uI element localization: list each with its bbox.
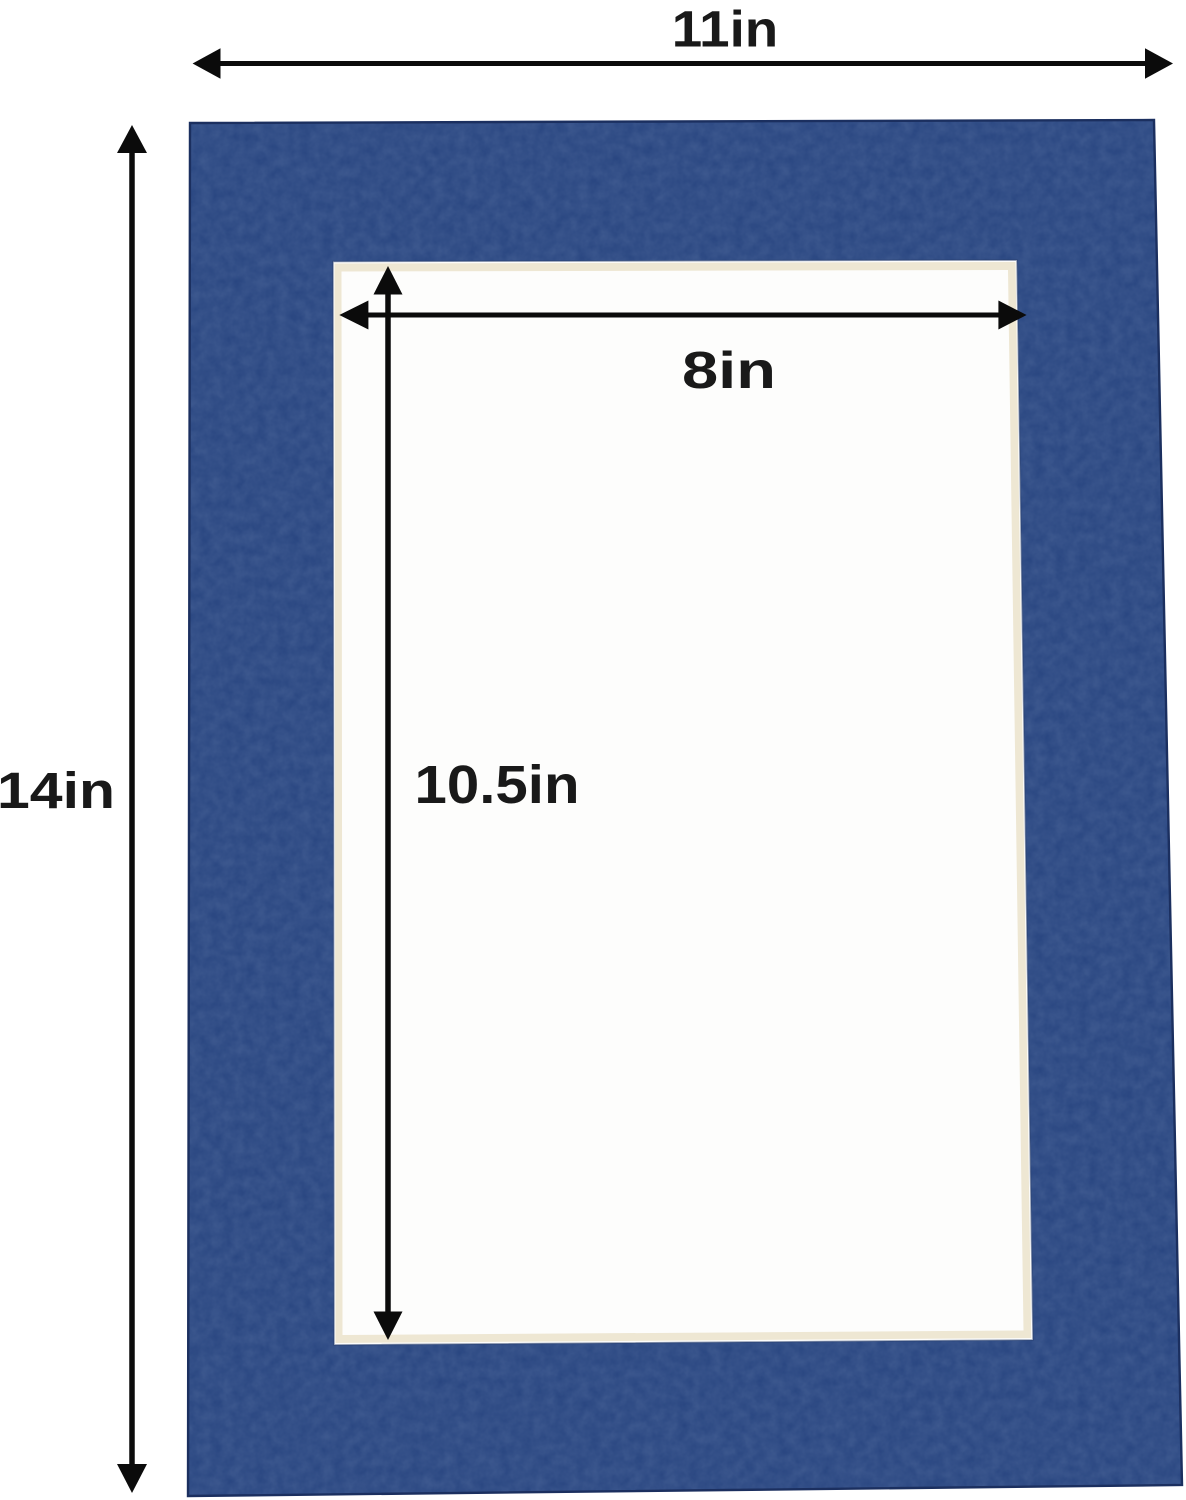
svg-text:14in: 14in bbox=[0, 762, 115, 819]
svg-text:8in: 8in bbox=[682, 342, 776, 400]
svg-text:10.5in: 10.5in bbox=[415, 755, 580, 815]
svg-text:11in: 11in bbox=[672, 1, 779, 58]
